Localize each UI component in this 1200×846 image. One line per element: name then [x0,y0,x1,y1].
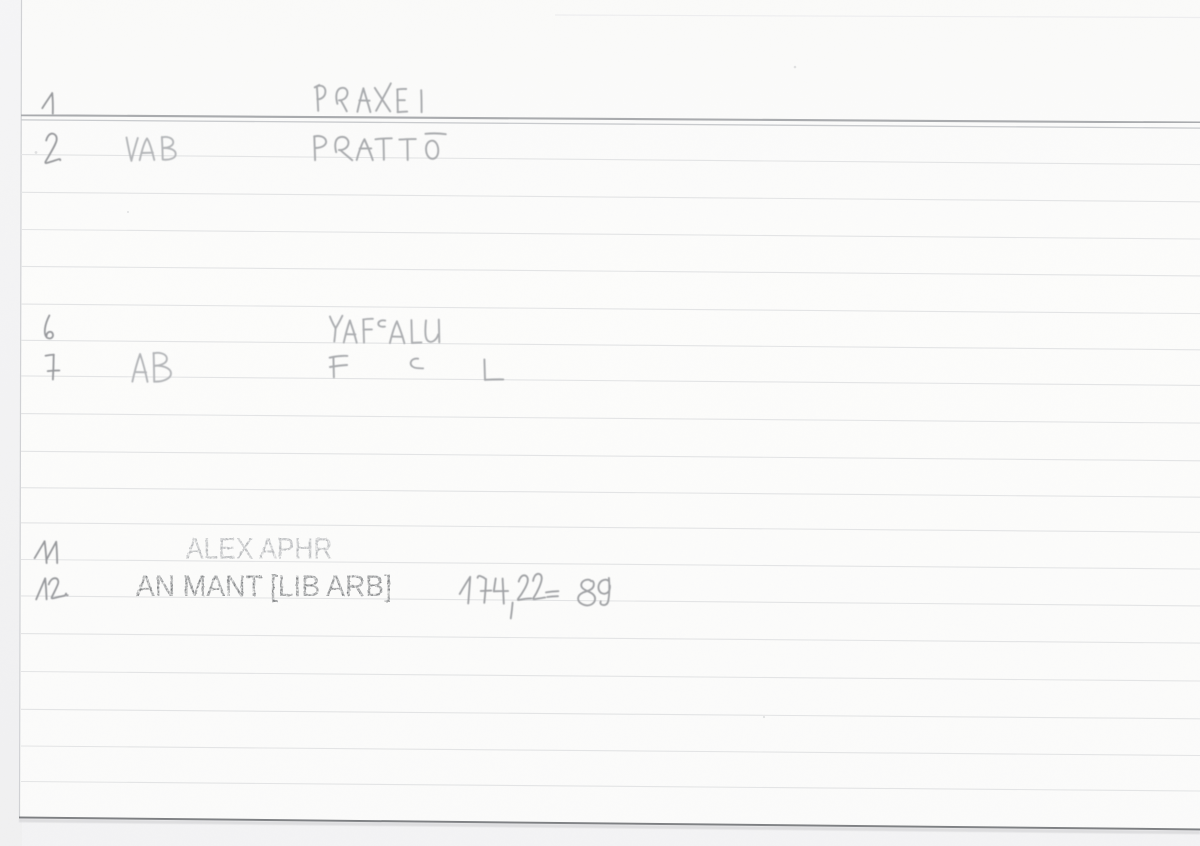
svg-text:AN MANT [LIB ARB]: AN MANT [LIB ARB] [136,570,392,603]
svg-text:ALEX APHR: ALEX APHR [186,532,332,565]
